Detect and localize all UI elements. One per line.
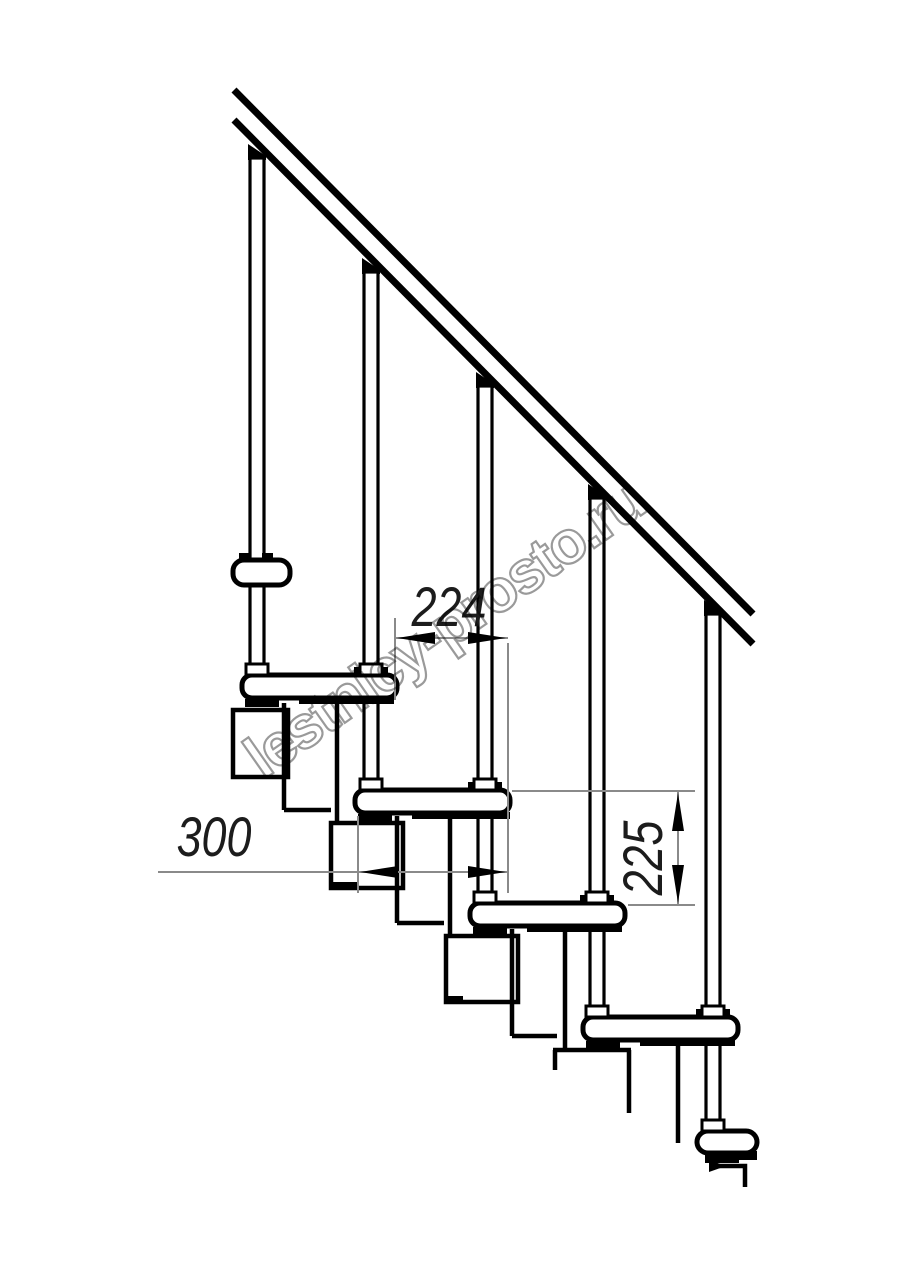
baluster-post [706,614,720,1135]
step-4 [583,1017,738,1040]
upper-platform-edge [233,560,290,585]
collar [702,1006,724,1017]
staircase-technical-drawing: 224 300 225 lestnicy-prosto.ru [0,0,914,1280]
dimension-label-300: 300 [177,805,252,868]
baluster-1 [248,144,266,679]
collar [360,779,382,790]
step-shadow-band [640,1039,735,1046]
drawing-canvas: 224 300 225 lestnicy-prosto.ru [0,0,914,1280]
step-foot [473,927,507,935]
collar [474,779,496,790]
step-2 [355,790,510,813]
module-box [331,823,403,888]
step-foot [586,1041,620,1049]
module-box [446,936,518,1002]
collar [586,892,608,903]
baluster-post [590,498,604,1021]
dimension-label-225: 225 [611,820,674,896]
module-weld-mark [331,882,357,889]
baluster-5 [704,600,722,1135]
step-shadow-band [733,1151,757,1160]
module-weld-mark [446,996,463,1003]
step-5-partial [697,1131,757,1153]
step-shadow-band [527,925,622,932]
collar [246,664,268,675]
collar [474,892,496,903]
step-foot [358,814,392,822]
step-shadow-band [412,812,510,819]
collar [702,1120,724,1131]
step-3 [470,903,625,926]
baluster-post [478,386,492,907]
collar [586,1006,608,1017]
baluster-post [250,158,264,679]
